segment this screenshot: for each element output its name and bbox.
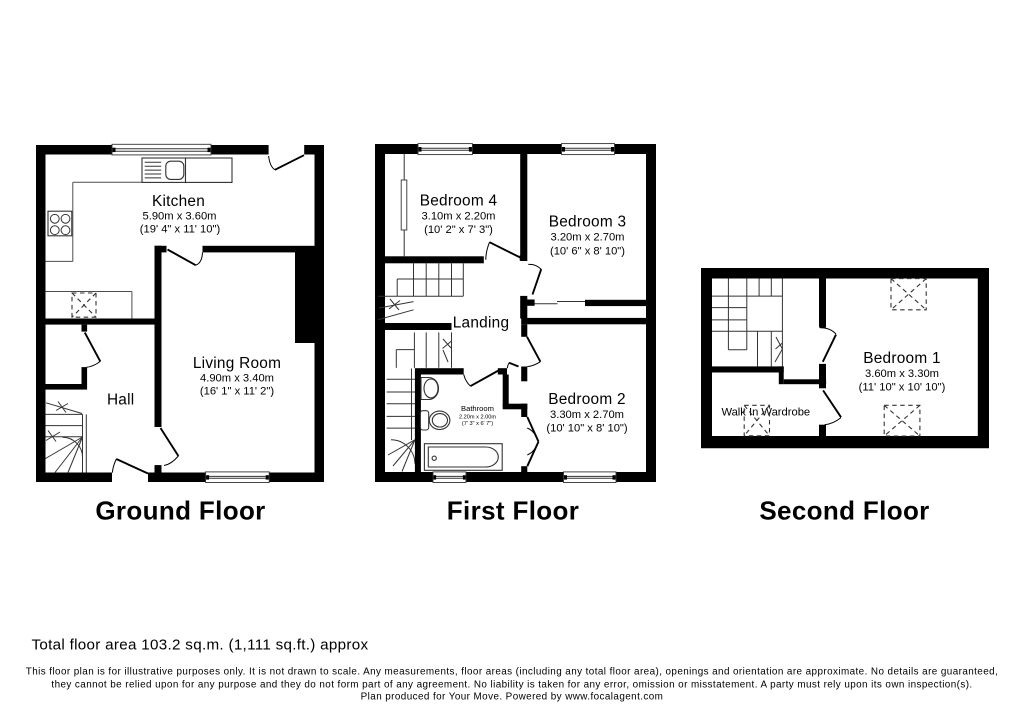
svg-text:(11' 10" x 10' 10"): (11' 10" x 10' 10") [859, 382, 946, 394]
svg-text:5.90m x 3.60m: 5.90m x 3.60m [143, 211, 217, 223]
svg-text:2.20m x 2.00m: 2.20m x 2.00m [459, 415, 496, 421]
svg-text:4.90m x 3.40m: 4.90m x 3.40m [200, 373, 274, 385]
svg-text:3.20m x 2.70m: 3.20m x 2.70m [551, 232, 625, 244]
svg-text:3.30m x 2.70m: 3.30m x 2.70m [550, 409, 624, 421]
svg-text:Living Room: Living Room [193, 355, 281, 372]
svg-text:Bedroom 1: Bedroom 1 [863, 350, 941, 367]
svg-text:First Floor: First Floor [447, 496, 579, 526]
svg-text:they cannot be relied upon for: they cannot be relied upon for any purpo… [51, 680, 972, 691]
svg-text:Hall: Hall [107, 392, 135, 409]
svg-text:Kitchen: Kitchen [152, 193, 205, 210]
svg-text:Bedroom 3: Bedroom 3 [549, 214, 627, 231]
svg-text:Bedroom 2: Bedroom 2 [548, 391, 626, 408]
svg-text:Total floor area 103.2 sq.m. (: Total floor area 103.2 sq.m. (1,111 sq.f… [32, 637, 369, 654]
svg-text:This floor plan is for illustr: This floor plan is for illustrative purp… [26, 667, 998, 678]
svg-text:Ground Floor: Ground Floor [95, 496, 265, 526]
svg-text:(10' 10" x 8' 10"): (10' 10" x 8' 10") [546, 423, 628, 435]
svg-text:Plan produced for Your Move. P: Plan produced for Your Move. Powered by … [361, 692, 664, 703]
svg-text:(10' 2" x 7' 3"): (10' 2" x 7' 3") [424, 224, 493, 236]
svg-text:Second Floor: Second Floor [759, 496, 929, 526]
svg-text:Landing: Landing [453, 315, 510, 332]
svg-text:(19' 4" x 11' 10"): (19' 4" x 11' 10") [140, 224, 221, 236]
svg-text:(16' 1" x 11' 2"): (16' 1" x 11' 2") [200, 386, 274, 398]
svg-text:Bedroom 4: Bedroom 4 [420, 193, 498, 210]
svg-text:Bathroom: Bathroom [461, 404, 494, 413]
svg-text:(7' 3" x 6' 7"): (7' 3" x 6' 7") [462, 421, 493, 427]
svg-text:Walk In Wardrobe: Walk In Wardrobe [721, 407, 810, 419]
svg-text:(10' 6" x 8' 10"): (10' 6" x 8' 10") [550, 246, 625, 258]
svg-text:3.60m x 3.30m: 3.60m x 3.30m [865, 368, 939, 380]
svg-text:3.10m x 2.20m: 3.10m x 2.20m [422, 211, 496, 223]
